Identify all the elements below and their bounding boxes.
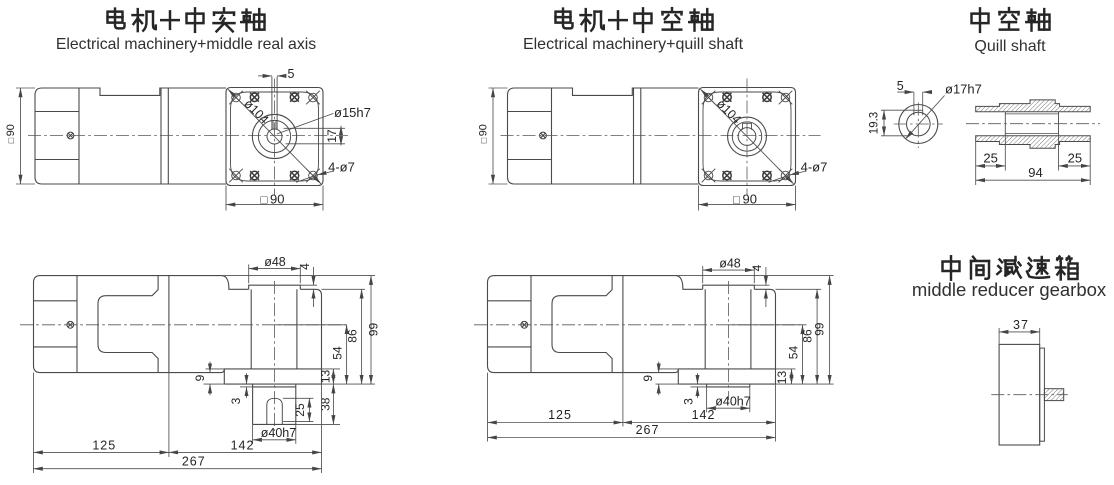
svg-text:94: 94 [1028, 165, 1042, 180]
svg-text:13: 13 [775, 371, 789, 385]
svg-text:38: 38 [319, 397, 333, 411]
svg-text:90: 90 [743, 191, 757, 206]
svg-text:5: 5 [897, 79, 904, 93]
svg-text:267: 267 [182, 454, 206, 468]
svg-text:90: 90 [270, 191, 284, 206]
svg-text:Electrical machinery+middle re: Electrical machinery+middle real axis [56, 36, 316, 53]
svg-text:125: 125 [92, 438, 116, 452]
svg-text:4-ø7: 4-ø7 [328, 160, 355, 175]
svg-text:3: 3 [681, 398, 695, 405]
svg-text:5: 5 [288, 67, 295, 81]
svg-text:ø17h7: ø17h7 [945, 82, 982, 97]
svg-text:3: 3 [229, 397, 243, 404]
svg-text:ø40h7: ø40h7 [715, 395, 750, 409]
svg-text:267: 267 [636, 423, 660, 437]
svg-text:ø48: ø48 [264, 255, 286, 269]
svg-text:9: 9 [641, 375, 655, 382]
svg-text:4-ø7: 4-ø7 [801, 160, 828, 175]
svg-text:37: 37 [1013, 318, 1029, 332]
svg-text:□: □ [733, 194, 740, 206]
svg-text:25: 25 [983, 151, 997, 166]
svg-text:54: 54 [787, 346, 801, 360]
svg-text:middle reducer gearbox: middle reducer gearbox [912, 279, 1107, 300]
svg-text:13: 13 [319, 370, 333, 384]
svg-text:ø40h7: ø40h7 [261, 426, 296, 440]
svg-text:□: □ [6, 137, 16, 143]
svg-text:4: 4 [750, 264, 764, 271]
svg-text:90: 90 [478, 124, 490, 136]
svg-text:Electrical machinery+quill sha: Electrical machinery+quill shaft [523, 36, 744, 53]
svg-text:86: 86 [345, 329, 359, 343]
svg-text:9: 9 [193, 374, 207, 381]
svg-text:142: 142 [231, 438, 255, 452]
svg-text:125: 125 [548, 408, 572, 422]
svg-text:17: 17 [325, 129, 339, 143]
svg-text:142: 142 [692, 408, 716, 422]
svg-text:90: 90 [5, 124, 17, 136]
svg-text:Quill shaft: Quill shaft [974, 38, 1046, 55]
svg-text:19.3: 19.3 [869, 112, 881, 134]
svg-text:ø48: ø48 [719, 256, 741, 270]
svg-text:□: □ [479, 137, 489, 143]
svg-text:99: 99 [367, 323, 381, 337]
svg-text:ø15h7: ø15h7 [334, 105, 371, 120]
svg-text:25: 25 [293, 403, 307, 417]
svg-text:99: 99 [812, 322, 826, 336]
svg-text:4: 4 [298, 263, 312, 270]
svg-text:54: 54 [331, 346, 345, 360]
svg-text:25: 25 [1068, 151, 1082, 166]
svg-text:□: □ [261, 194, 268, 206]
